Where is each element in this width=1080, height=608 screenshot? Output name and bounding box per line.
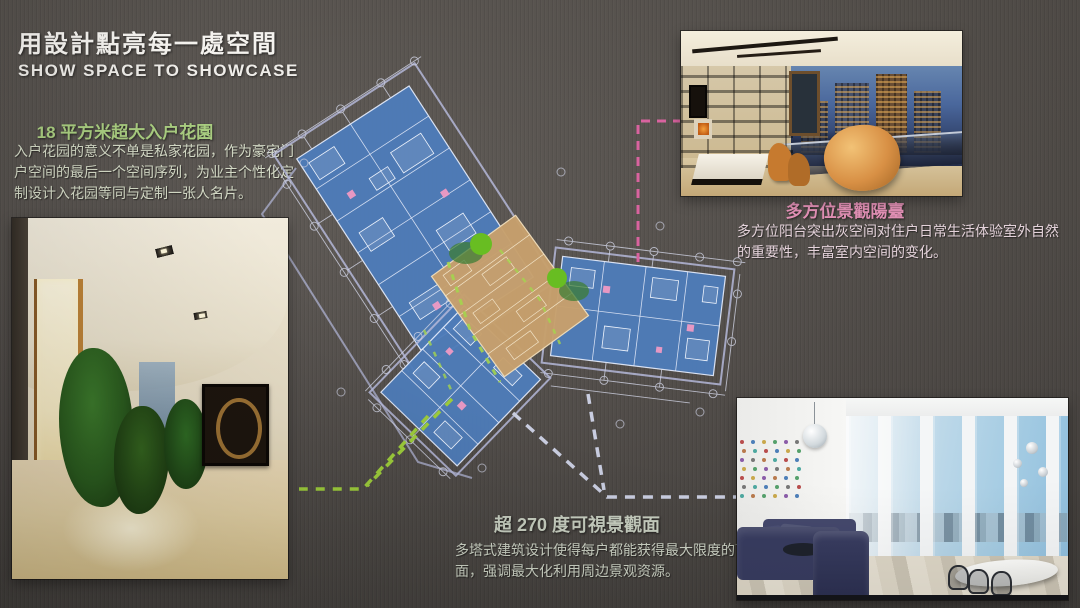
tree-icon — [547, 268, 567, 288]
framed-picture — [789, 71, 820, 136]
dot-artwork — [740, 440, 744, 444]
pendant-cluster-light — [1038, 467, 1048, 477]
wire-chair — [968, 569, 989, 594]
lounge-window-wall — [836, 406, 1068, 576]
coffee-table — [691, 154, 769, 185]
artwork-ring — [216, 398, 262, 459]
slide-background: 用設計點亮每一處空間 SHOW SPACE TO SHOWCASE 18 平方米… — [0, 0, 1080, 608]
window-light — [836, 406, 1068, 576]
pendant-cluster-light — [1013, 459, 1022, 468]
tv-screen — [689, 85, 708, 118]
photo-bottom-edge — [737, 595, 1068, 600]
wire-chair — [991, 571, 1012, 596]
leader-line-to-balcony-photo — [638, 121, 680, 262]
tree-icon — [470, 233, 492, 255]
garden-wall-artwork — [202, 384, 269, 466]
navy-armchair — [813, 531, 869, 600]
panoramic-lounge-photo — [737, 398, 1068, 600]
entry-garden-photo — [12, 218, 288, 579]
wire-chair — [948, 565, 969, 590]
balcony-living-room-photo — [681, 31, 962, 196]
fireplace — [694, 119, 712, 139]
